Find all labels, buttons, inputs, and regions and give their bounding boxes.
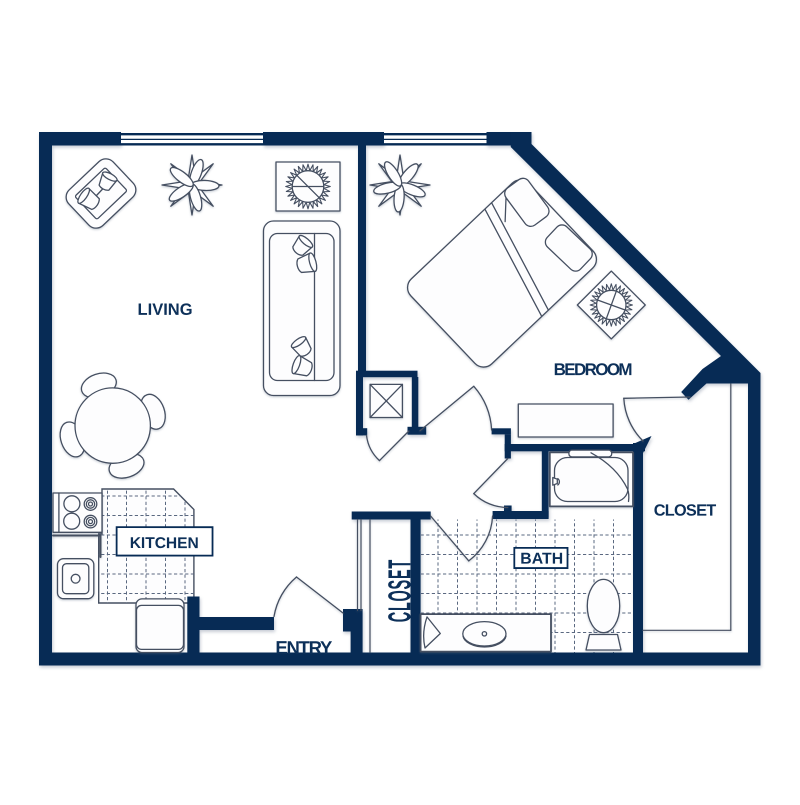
svg-text:LIVING: LIVING <box>138 301 193 319</box>
svg-text:BATH: BATH <box>520 551 563 568</box>
svg-text:KITCHEN: KITCHEN <box>130 535 199 552</box>
svg-text:CLOSET: CLOSET <box>654 502 717 520</box>
svg-text:BEDROOM: BEDROOM <box>554 360 633 379</box>
svg-text:ENTRY: ENTRY <box>275 637 333 658</box>
svg-text:CLOSET: CLOSET <box>383 560 418 623</box>
